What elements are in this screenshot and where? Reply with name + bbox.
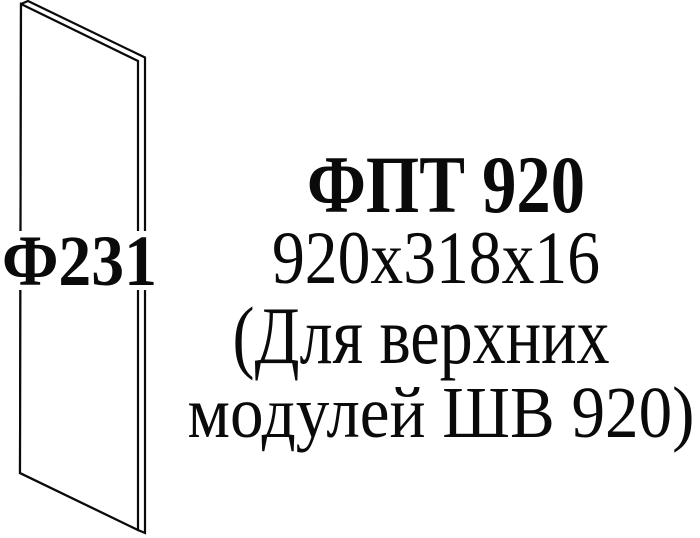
caption-note-line1: (Для верхних xyxy=(233,290,610,381)
caption-dimensions: 920x318x16 xyxy=(272,217,600,300)
product-diagram-page: Ф231 ФПТ 920 920x318x16 (Для верхних мод… xyxy=(0,0,700,538)
caption-note-line2: модулей ШВ 920) xyxy=(188,372,695,453)
panel-label-group: Ф231 xyxy=(0,221,161,301)
caption-block: ФПТ 920 920x318x16 (Для верхних модулей … xyxy=(188,139,695,453)
panel-label: Ф231 xyxy=(2,221,157,301)
